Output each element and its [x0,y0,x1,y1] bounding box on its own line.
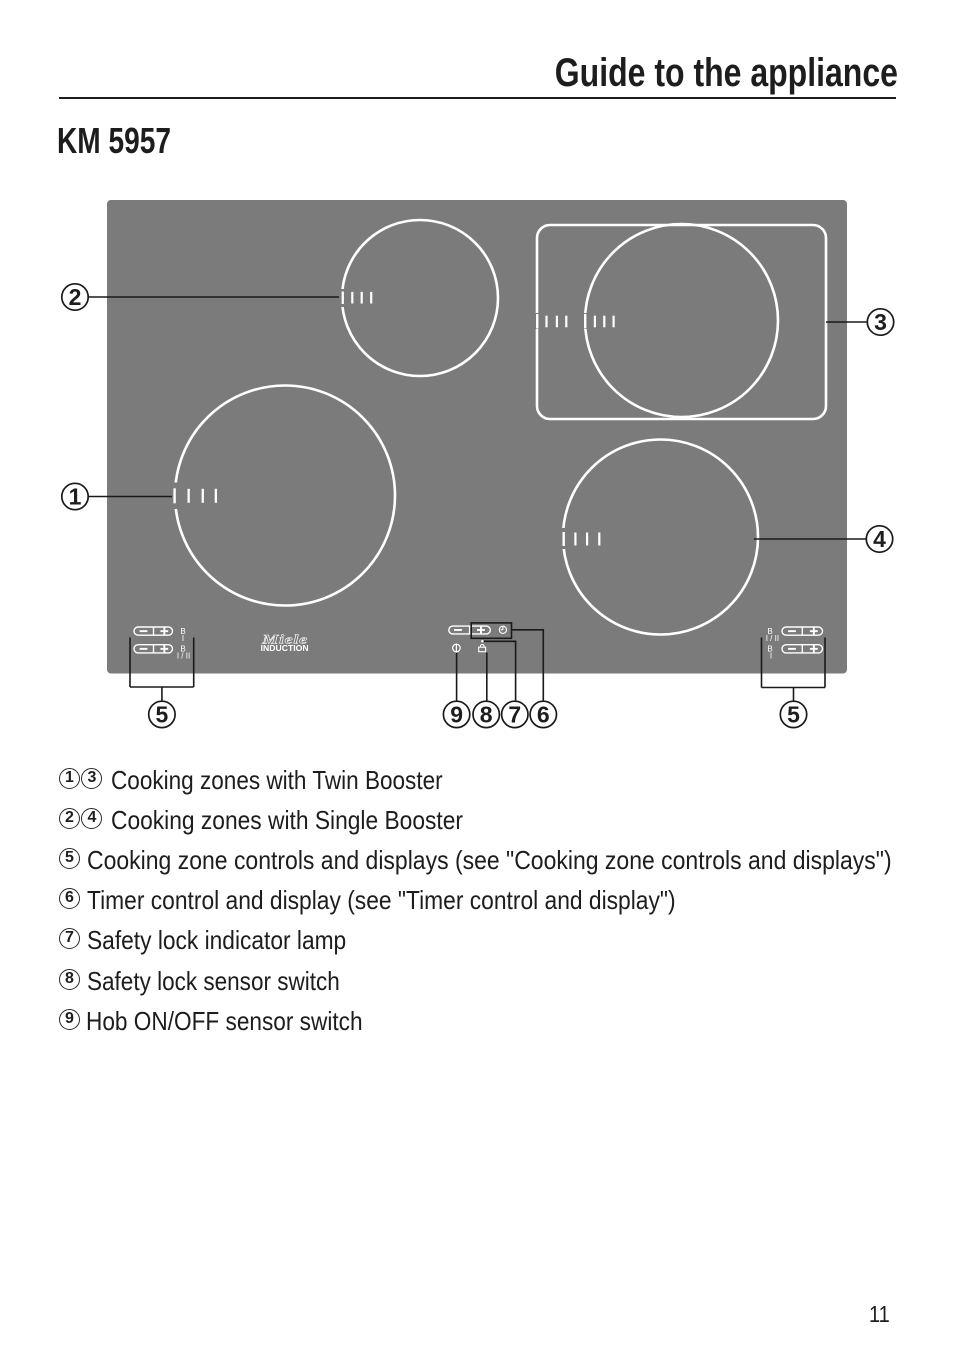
svg-text:1: 1 [69,484,82,510]
svg-text:I / II: I / II [766,634,779,643]
svg-text:INDUCTION: INDUCTION [261,644,309,653]
svg-text:3: 3 [874,309,887,335]
svg-text:5: 5 [787,701,800,727]
svg-text:2: 2 [69,284,82,310]
svg-text:I: I [770,652,772,661]
svg-text:9: 9 [450,701,463,727]
svg-text:6: 6 [537,701,550,727]
svg-text:I / II: I / II [177,652,190,661]
svg-text:I: I [182,634,184,643]
svg-text:5: 5 [156,701,169,727]
svg-text:8: 8 [480,701,493,727]
svg-text:4: 4 [873,526,886,552]
svg-text:7: 7 [508,701,521,727]
